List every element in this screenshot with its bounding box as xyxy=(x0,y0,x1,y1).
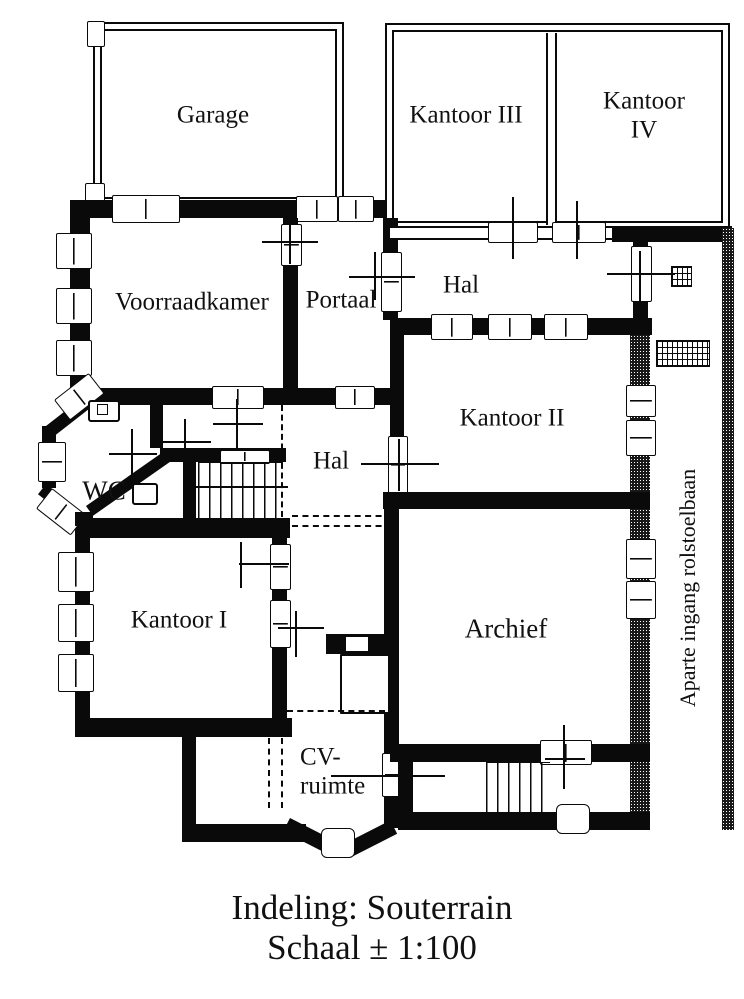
dashed-line xyxy=(268,738,270,808)
wall-stippled xyxy=(722,228,734,830)
vent-grate xyxy=(671,266,692,287)
door-swing-line xyxy=(403,751,405,803)
door-swing-line xyxy=(349,276,415,278)
door-swing-line xyxy=(278,627,324,629)
dashed-line xyxy=(287,710,385,712)
door xyxy=(270,544,291,590)
floor-plan-canvas: Garage Kantoor III Kantoor IV Voorraadka… xyxy=(0,0,744,999)
door-swing-line xyxy=(607,273,675,275)
caption-title: Indeling: Souterrain xyxy=(0,888,744,928)
door xyxy=(335,386,375,409)
floor-grate xyxy=(656,340,710,367)
wall xyxy=(183,462,196,520)
door-swing-line xyxy=(161,441,211,443)
kantoor-3-4-divider-wall xyxy=(546,33,557,225)
door xyxy=(270,600,291,648)
wall xyxy=(383,492,650,509)
door-swing-line xyxy=(576,201,578,259)
door xyxy=(381,252,402,312)
window xyxy=(626,385,656,417)
boiler xyxy=(340,654,390,714)
wall xyxy=(75,518,290,538)
window xyxy=(38,442,66,482)
window xyxy=(488,314,532,340)
exterior-door xyxy=(556,804,590,834)
window xyxy=(338,196,374,222)
exterior-door xyxy=(321,828,355,858)
wall xyxy=(182,735,196,831)
window xyxy=(58,654,94,692)
door-swing-line xyxy=(295,611,297,657)
door-swing-line xyxy=(563,725,565,789)
window xyxy=(431,314,473,340)
door-swing-line xyxy=(213,423,263,425)
door-swing-line xyxy=(184,419,186,469)
side-label-entrance: Aparte ingang rolstoelbaan xyxy=(675,469,701,707)
door-swing-line xyxy=(262,241,318,243)
door-swing-line xyxy=(236,399,238,451)
room-label-kantoor-3: Kantoor III xyxy=(409,102,522,131)
room-label-kantoor-1: Kantoor I xyxy=(131,607,228,636)
caption-scale: Schaal ± 1:100 xyxy=(0,928,744,968)
door-swing-line xyxy=(239,563,289,565)
room-label-cv-ruimte: CV- ruimte xyxy=(300,743,365,801)
sink-icon xyxy=(132,483,158,505)
room-label-hal-boven: Hal xyxy=(443,272,479,301)
room-label-kantoor-2: Kantoor II xyxy=(460,405,565,434)
dashed-line xyxy=(281,738,283,808)
door xyxy=(212,386,264,409)
door-swing-line xyxy=(398,439,400,491)
window xyxy=(112,195,180,223)
dashed-line xyxy=(281,405,283,517)
dashed-line xyxy=(292,515,392,517)
window xyxy=(626,420,656,456)
window xyxy=(56,233,92,269)
staircase xyxy=(198,462,283,521)
room-label-voorraadkamer: Voorraadkamer xyxy=(115,289,269,318)
garage-corner-pier xyxy=(87,21,105,47)
stair-landing-line xyxy=(196,486,288,488)
room-label-kantoor-4: Kantoor IV xyxy=(594,87,694,145)
wall xyxy=(612,226,732,242)
door-swing-line xyxy=(545,758,585,760)
window xyxy=(58,604,94,642)
door-swing-line xyxy=(512,197,514,259)
room-label-portaal: Portaal xyxy=(306,287,377,316)
window xyxy=(56,340,92,376)
room-label-wc: WC xyxy=(82,475,126,506)
door xyxy=(281,224,302,266)
wall-notch xyxy=(346,637,368,651)
door-swing-line xyxy=(109,453,157,455)
window xyxy=(626,539,656,579)
window xyxy=(58,552,94,592)
wall xyxy=(398,762,413,814)
door-swing-line xyxy=(361,463,439,465)
door xyxy=(552,222,606,243)
door-swing-line xyxy=(639,251,641,301)
room-label-hal-midden: Hal xyxy=(313,448,349,477)
window xyxy=(626,581,656,619)
room-label-garage: Garage xyxy=(177,102,249,131)
staircase xyxy=(486,762,550,813)
room-label-archief: Archief xyxy=(465,613,547,644)
window xyxy=(296,196,338,222)
wall xyxy=(390,744,650,762)
toilet-icon-detail xyxy=(97,404,108,415)
wall xyxy=(75,512,93,526)
window xyxy=(544,314,588,340)
door-swing-line xyxy=(240,542,242,588)
window xyxy=(56,288,92,324)
dashed-line xyxy=(292,525,392,527)
wall xyxy=(398,812,650,830)
door-swing-line xyxy=(131,429,133,481)
